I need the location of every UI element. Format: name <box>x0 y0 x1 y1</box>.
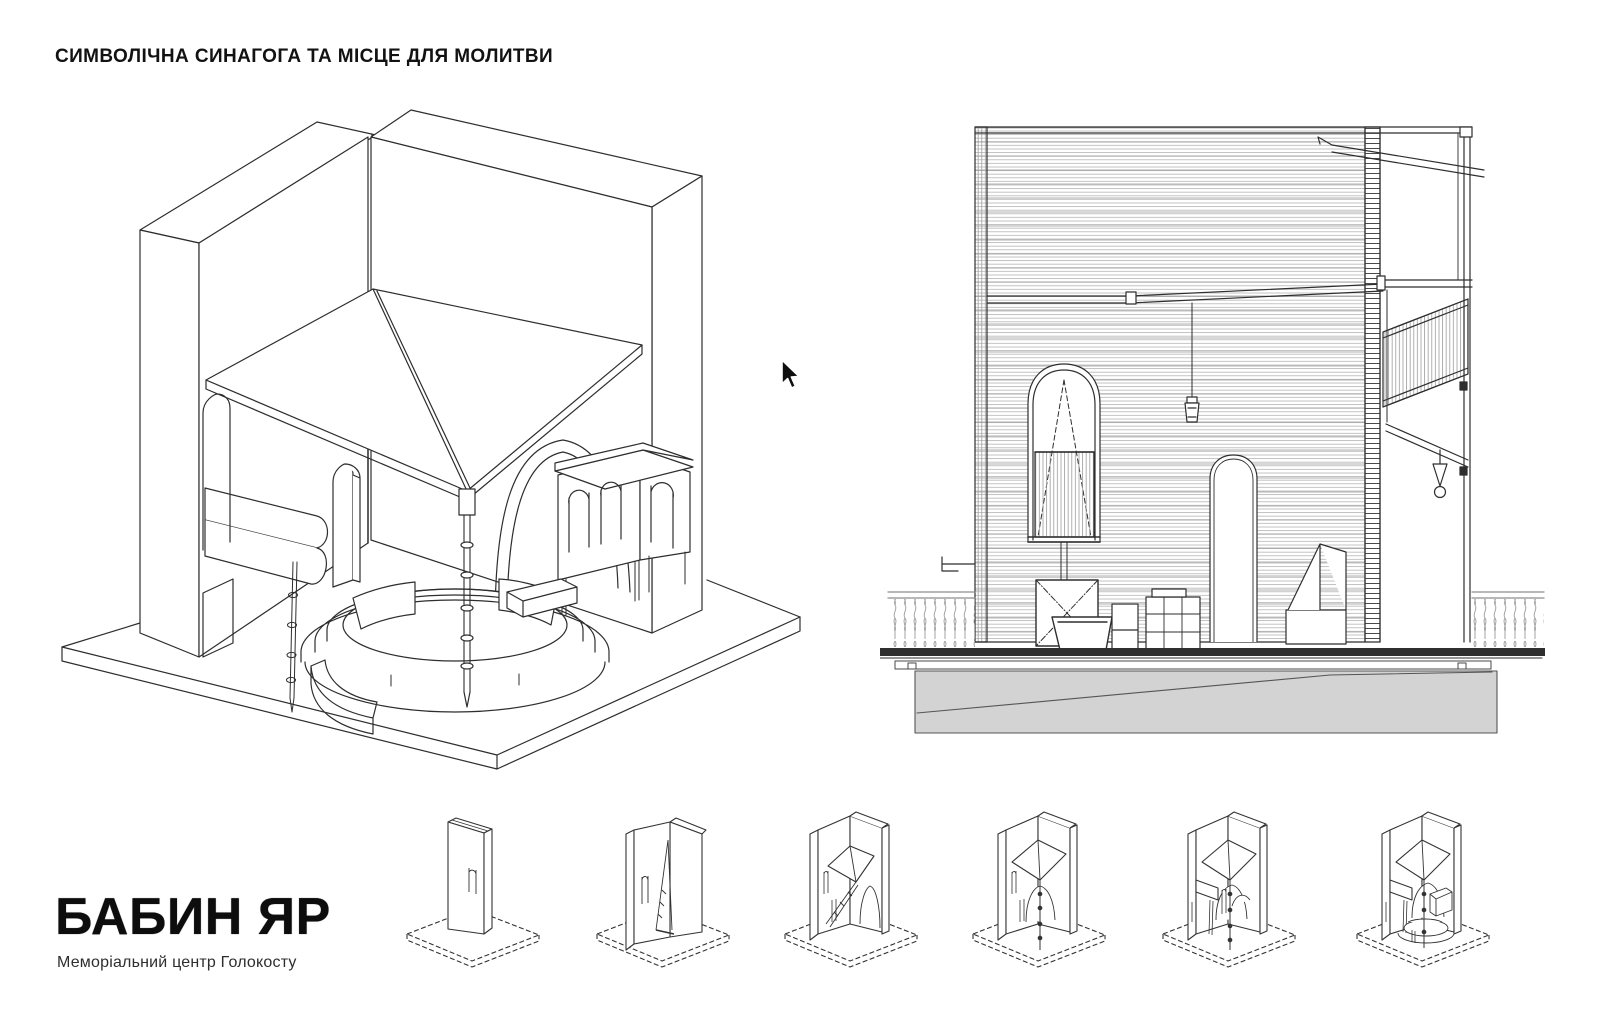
presentation-page: { "page": { "title": "СИМВОЛІЧНА СИНАГОГ… <box>0 0 1622 1020</box>
sequence-step-3 <box>770 782 930 977</box>
ground-slab <box>915 671 1497 733</box>
section-drawing <box>880 112 1550 757</box>
sequence-step-5 <box>1148 782 1308 977</box>
bimah-steps <box>301 589 609 712</box>
stair-zone <box>1377 130 1472 642</box>
arched-door-slab <box>333 464 360 587</box>
wall-bracket <box>942 557 975 571</box>
door-arch <box>1210 455 1257 642</box>
sequence-step-6 <box>1342 782 1502 977</box>
edge-column <box>1365 127 1380 642</box>
left-balustrade <box>888 592 975 647</box>
sequence-step-2 <box>582 782 742 977</box>
arrow-cursor-icon <box>779 358 803 390</box>
logo-subtitle: Меморіальний центр Голокосту <box>57 954 297 972</box>
sequence-step-1 <box>392 782 552 977</box>
sequence-step-4 <box>958 782 1118 977</box>
page-title: СИМВОЛІЧНА СИНАГОГА ТА МІСЦЕ ДЛЯ МОЛИТВИ <box>55 46 553 68</box>
right-balustrade <box>1472 592 1544 647</box>
deck <box>880 648 1545 669</box>
babyn-yar-logo: БАБИН ЯР <box>55 891 331 943</box>
axonometric-drawing <box>55 100 830 772</box>
